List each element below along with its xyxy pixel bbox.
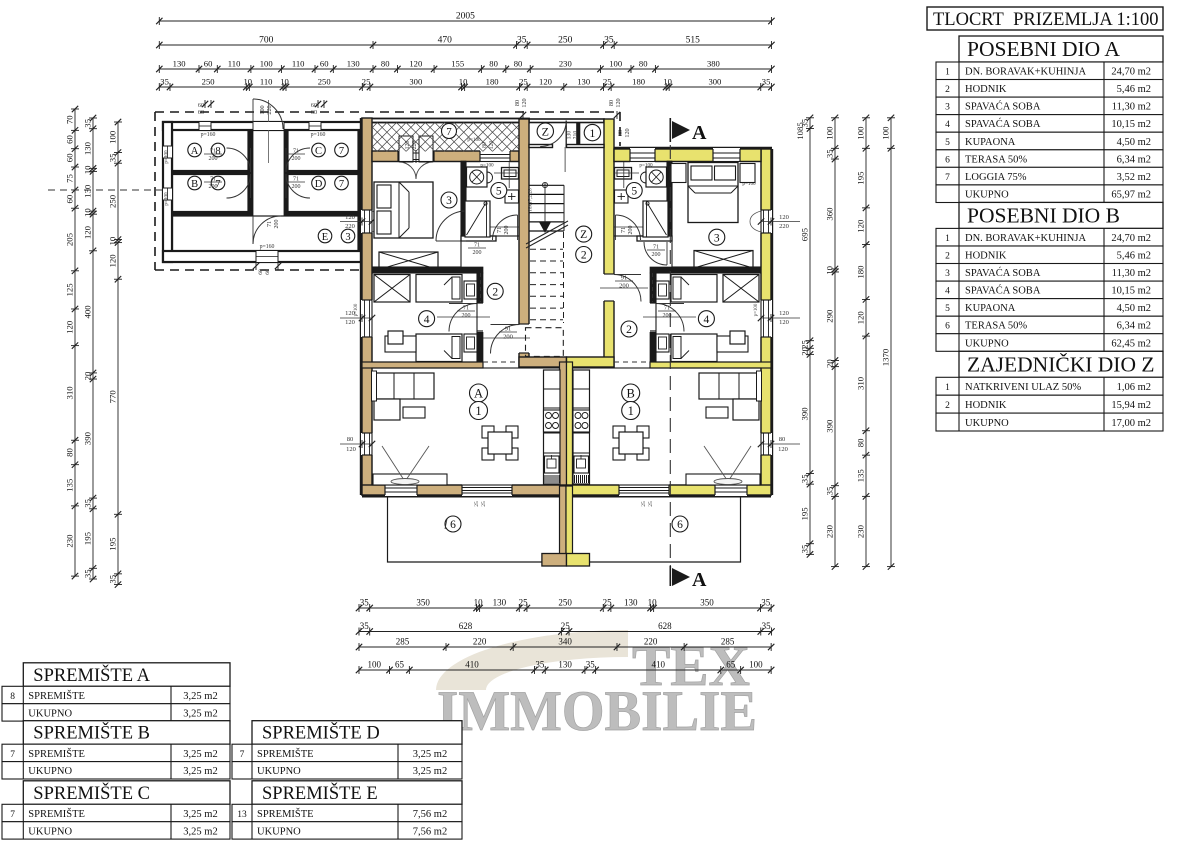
svg-text:4,50 m2: 4,50 m2: [1117, 303, 1151, 314]
svg-text:1085: 1085: [795, 122, 805, 140]
svg-text:180: 180: [486, 77, 499, 87]
svg-text:UKUPNO: UKUPNO: [28, 826, 72, 837]
svg-text:410: 410: [465, 660, 479, 670]
svg-text:UKUPNO: UKUPNO: [965, 338, 1009, 349]
svg-text:NATKRIVENI ULAZ 50%: NATKRIVENI ULAZ 50%: [965, 382, 1081, 393]
svg-text:285: 285: [721, 637, 735, 647]
svg-text:80: 80: [639, 59, 648, 69]
svg-text:100: 100: [259, 105, 266, 114]
svg-text:100: 100: [368, 660, 382, 670]
svg-text:35: 35: [83, 118, 93, 127]
svg-text:71: 71: [621, 227, 627, 233]
svg-text:60: 60: [265, 269, 271, 275]
svg-text:UKUPNO: UKUPNO: [28, 708, 72, 719]
svg-text:120: 120: [521, 98, 528, 107]
svg-text:130: 130: [558, 660, 572, 670]
svg-text:LOGGIA 75%: LOGGIA 75%: [965, 172, 1027, 183]
svg-text:195: 195: [856, 171, 866, 185]
svg-text:80: 80: [381, 59, 390, 69]
svg-text:70: 70: [65, 115, 75, 124]
svg-text:380: 380: [707, 59, 720, 69]
svg-text:18x17,2/28: 18x17,2/28: [528, 188, 534, 212]
svg-text:200: 200: [462, 313, 471, 319]
svg-text:SPREMIŠTE: SPREMIŠTE: [28, 748, 85, 760]
svg-text:3,25 m2: 3,25 m2: [183, 749, 217, 760]
svg-text:1,06 m2: 1,06 m2: [1117, 382, 1151, 393]
svg-text:80: 80: [65, 448, 75, 457]
svg-text:E: E: [322, 232, 328, 243]
svg-text:25: 25: [519, 77, 528, 87]
svg-text:3,25 m2: 3,25 m2: [183, 691, 217, 702]
svg-text:p=100: p=100: [754, 303, 759, 316]
svg-text:135: 135: [65, 478, 75, 492]
svg-text:A: A: [692, 569, 707, 591]
svg-text:60: 60: [65, 135, 75, 144]
svg-text:7: 7: [10, 810, 15, 820]
svg-text:400: 400: [83, 305, 93, 319]
svg-text:35: 35: [586, 660, 596, 670]
svg-text:UKUPNO: UKUPNO: [257, 766, 301, 777]
svg-text:1: 1: [945, 68, 950, 78]
svg-text:4,50 m2: 4,50 m2: [1117, 137, 1151, 148]
svg-text:515: 515: [686, 36, 701, 46]
svg-text:11,30 m2: 11,30 m2: [1112, 102, 1151, 113]
svg-text:700: 700: [259, 36, 274, 46]
svg-text:DN. BORAVAK+KUHINJA: DN. BORAVAK+KUHINJA: [965, 233, 1086, 244]
svg-text:p=100: p=100: [639, 163, 653, 169]
svg-text:p=100: p=100: [480, 163, 494, 169]
svg-text:120: 120: [856, 219, 866, 233]
svg-text:B: B: [191, 179, 198, 190]
svg-text:390: 390: [83, 431, 93, 445]
svg-text:130: 130: [624, 598, 638, 608]
svg-text:TERASA 50%: TERASA 50%: [965, 321, 1027, 332]
svg-text:80: 80: [779, 436, 786, 443]
svg-text:75: 75: [65, 174, 75, 183]
svg-text:120: 120: [778, 446, 788, 453]
svg-text:SPAVAĆA SOBA: SPAVAĆA SOBA: [965, 285, 1041, 297]
svg-text:230: 230: [65, 534, 75, 548]
svg-text:25: 25: [362, 77, 371, 87]
svg-text:TLOCRT PRIZEMLJA 1:100: TLOCRT PRIZEMLJA 1:100: [933, 10, 1159, 30]
svg-text:8: 8: [10, 692, 15, 702]
svg-text:220: 220: [473, 637, 487, 647]
svg-text:1370: 1370: [881, 348, 891, 366]
svg-text:p=100: p=100: [354, 303, 359, 316]
svg-text:6: 6: [450, 519, 456, 531]
svg-text:3: 3: [446, 195, 452, 207]
svg-text:SPREMIŠTE A: SPREMIŠTE A: [33, 664, 150, 686]
svg-text:80: 80: [608, 100, 615, 106]
svg-text:SPAVAĆA SOBA: SPAVAĆA SOBA: [965, 118, 1041, 130]
svg-text:2: 2: [581, 250, 587, 262]
svg-text:SPREMIŠTE: SPREMIŠTE: [257, 748, 314, 760]
svg-text:25: 25: [648, 501, 654, 507]
svg-text:100: 100: [108, 130, 118, 144]
svg-text:110: 110: [292, 59, 305, 69]
svg-text:p=160: p=160: [311, 132, 326, 138]
svg-text:SPREMIŠTE E: SPREMIŠTE E: [262, 782, 378, 804]
svg-text:p=160: p=160: [201, 132, 216, 138]
svg-text:6: 6: [677, 519, 683, 531]
svg-text:D: D: [315, 179, 323, 190]
svg-text:100: 100: [881, 126, 891, 140]
svg-text:p=100: p=100: [164, 150, 170, 164]
svg-text:25: 25: [474, 501, 480, 507]
svg-text:80: 80: [514, 100, 521, 106]
svg-text:3: 3: [945, 269, 950, 279]
svg-text:100: 100: [609, 59, 622, 69]
svg-text:ZAJEDNIČKI DIO Z: ZAJEDNIČKI DIO Z: [967, 352, 1155, 376]
svg-text:7: 7: [240, 750, 245, 760]
svg-text:UKUPNO: UKUPNO: [965, 189, 1009, 200]
svg-text:HODNIK: HODNIK: [965, 251, 1007, 262]
svg-text:120: 120: [409, 59, 422, 69]
svg-text:120: 120: [65, 320, 75, 334]
svg-text:60: 60: [320, 59, 329, 69]
svg-text:HODNIK: HODNIK: [965, 400, 1007, 411]
svg-text:91: 91: [621, 275, 628, 282]
svg-text:120: 120: [615, 98, 622, 107]
svg-text:5: 5: [496, 186, 502, 198]
svg-text:SPREMIŠTE B: SPREMIŠTE B: [33, 722, 150, 744]
svg-text:100: 100: [856, 126, 866, 140]
svg-text:B: B: [627, 387, 635, 401]
svg-text:C: C: [315, 146, 322, 157]
svg-text:130: 130: [173, 59, 186, 69]
svg-text:p=100: p=100: [164, 192, 170, 206]
svg-text:220: 220: [345, 223, 355, 230]
svg-text:7: 7: [945, 173, 950, 183]
svg-text:200: 200: [209, 184, 218, 190]
svg-text:UKUPNO: UKUPNO: [257, 826, 301, 837]
svg-text:180: 180: [632, 77, 645, 87]
svg-text:410: 410: [651, 660, 665, 670]
svg-text:300: 300: [708, 77, 721, 87]
svg-text:120: 120: [345, 319, 355, 326]
svg-text:120: 120: [856, 311, 866, 325]
svg-text:1: 1: [628, 404, 634, 418]
svg-text:17,00 m2: 17,00 m2: [1111, 418, 1151, 429]
svg-text:6,34 m2: 6,34 m2: [1117, 154, 1151, 165]
svg-text:62,45 m2: 62,45 m2: [1111, 338, 1151, 349]
svg-text:1: 1: [475, 404, 481, 418]
svg-text:KUPAONA: KUPAONA: [965, 137, 1016, 148]
svg-text:35: 35: [800, 474, 810, 483]
svg-text:2: 2: [945, 252, 950, 262]
svg-text:120: 120: [108, 254, 118, 268]
svg-text:130: 130: [577, 77, 590, 87]
svg-text:100: 100: [260, 59, 273, 69]
svg-text:Z: Z: [542, 125, 549, 139]
svg-text:628: 628: [459, 621, 473, 631]
svg-text:35: 35: [83, 498, 93, 507]
svg-text:130: 130: [83, 141, 93, 155]
svg-text:1: 1: [589, 126, 595, 140]
svg-text:35: 35: [535, 660, 545, 670]
svg-text:SPAVAĆA SOBA: SPAVAĆA SOBA: [965, 267, 1041, 279]
svg-text:2: 2: [945, 401, 950, 411]
svg-text:250: 250: [558, 36, 573, 46]
svg-text:250: 250: [108, 194, 118, 208]
svg-text:200: 200: [292, 184, 301, 190]
svg-text:Z: Z: [580, 229, 587, 241]
svg-text:110: 110: [228, 59, 241, 69]
svg-text:SPREMIŠTE D: SPREMIŠTE D: [262, 722, 380, 744]
svg-text:35: 35: [762, 77, 771, 87]
svg-text:1: 1: [945, 383, 950, 393]
svg-text:390: 390: [800, 407, 810, 421]
svg-text:80: 80: [514, 59, 523, 69]
svg-text:80: 80: [856, 438, 866, 447]
svg-text:340: 340: [558, 637, 572, 647]
svg-text:25: 25: [641, 501, 647, 507]
svg-text:205: 205: [65, 232, 75, 246]
svg-text:4: 4: [945, 120, 950, 130]
svg-text:220: 220: [266, 105, 273, 114]
svg-text:71: 71: [267, 221, 273, 227]
svg-text:POSEBNI DIO B: POSEBNI DIO B: [967, 203, 1120, 227]
svg-text:6,34 m2: 6,34 m2: [1117, 321, 1151, 332]
svg-text:180: 180: [856, 265, 866, 279]
svg-text:4: 4: [704, 314, 710, 326]
svg-text:350: 350: [416, 598, 430, 608]
svg-text:195: 195: [83, 531, 93, 545]
svg-text:310: 310: [856, 376, 866, 390]
svg-text:310: 310: [65, 386, 75, 400]
svg-text:UKUPNO: UKUPNO: [28, 766, 72, 777]
svg-text:200: 200: [652, 252, 661, 258]
svg-text:35: 35: [83, 569, 93, 578]
svg-text:3,25 m2: 3,25 m2: [413, 766, 447, 777]
svg-text:80: 80: [347, 436, 354, 443]
svg-text:628: 628: [658, 621, 672, 631]
svg-text:200: 200: [292, 156, 301, 162]
svg-text:120: 120: [346, 446, 356, 453]
svg-text:10,15 m2: 10,15 m2: [1111, 119, 1151, 130]
svg-text:3,25 m2: 3,25 m2: [183, 826, 217, 837]
svg-text:POSEBNI DIO A: POSEBNI DIO A: [967, 37, 1120, 61]
svg-text:DN. BORAVAK+KUHINJA: DN. BORAVAK+KUHINJA: [965, 67, 1086, 78]
svg-text:120: 120: [624, 128, 631, 137]
svg-text:130: 130: [83, 184, 93, 198]
svg-text:120: 120: [779, 214, 789, 221]
svg-text:130: 130: [493, 598, 507, 608]
svg-text:5,46 m2: 5,46 m2: [1117, 251, 1151, 262]
svg-text:35: 35: [360, 598, 370, 608]
svg-text:35: 35: [825, 486, 835, 495]
svg-text:65: 65: [395, 660, 405, 670]
svg-text:5: 5: [631, 186, 637, 198]
svg-text:155: 155: [451, 59, 464, 69]
svg-text:200: 200: [274, 220, 280, 229]
svg-text:SPREMIŠTE: SPREMIŠTE: [257, 808, 314, 820]
svg-text:5: 5: [945, 138, 950, 148]
svg-text:195: 195: [108, 537, 118, 551]
svg-text:100: 100: [825, 126, 835, 140]
svg-text:695: 695: [800, 227, 810, 241]
svg-text:91: 91: [505, 326, 512, 333]
svg-text:470: 470: [438, 36, 453, 46]
svg-text:285: 285: [396, 637, 410, 647]
svg-text:24,70 m2: 24,70 m2: [1111, 233, 1151, 244]
svg-text:300: 300: [409, 77, 422, 87]
svg-text:60: 60: [258, 269, 264, 275]
svg-text:SPAVAĆA SOBA: SPAVAĆA SOBA: [965, 101, 1041, 113]
svg-text:120: 120: [83, 225, 93, 239]
svg-text:35: 35: [761, 598, 771, 608]
svg-text:200: 200: [504, 226, 510, 235]
svg-text:100: 100: [749, 660, 763, 670]
svg-text:24,70 m2: 24,70 m2: [1111, 67, 1151, 78]
svg-text:3,25 m2: 3,25 m2: [413, 749, 447, 760]
svg-text:6: 6: [945, 155, 950, 165]
svg-text:2: 2: [626, 324, 632, 336]
svg-text:UKUPNO: UKUPNO: [965, 418, 1009, 429]
svg-text:220: 220: [779, 223, 789, 230]
svg-text:11,30 m2: 11,30 m2: [1112, 268, 1151, 279]
svg-text:35: 35: [108, 153, 118, 162]
svg-text:A: A: [474, 387, 483, 401]
svg-text:200: 200: [503, 334, 513, 341]
svg-text:KUPAONA: KUPAONA: [965, 303, 1016, 314]
svg-text:35: 35: [825, 149, 835, 158]
svg-text:71: 71: [497, 227, 503, 233]
svg-text:7: 7: [10, 750, 15, 760]
svg-text:290: 290: [825, 309, 835, 323]
svg-text:35: 35: [160, 77, 169, 87]
svg-text:60: 60: [65, 153, 75, 162]
svg-text:2005: 2005: [456, 12, 475, 22]
svg-text:250: 250: [202, 77, 215, 87]
svg-text:5: 5: [945, 304, 950, 314]
svg-text:130: 130: [347, 59, 360, 69]
svg-text:65: 65: [726, 660, 736, 670]
svg-text:65,97 m2: 65,97 m2: [1111, 189, 1151, 200]
svg-text:60: 60: [65, 194, 75, 203]
svg-text:7,56 m2: 7,56 m2: [413, 809, 447, 820]
svg-text:35: 35: [360, 621, 370, 631]
svg-text:3: 3: [945, 103, 950, 113]
svg-text:135: 135: [856, 469, 866, 483]
svg-text:200: 200: [209, 156, 218, 162]
svg-text:80: 80: [489, 59, 498, 69]
svg-text:250: 250: [318, 77, 331, 87]
svg-text:120: 120: [539, 77, 552, 87]
svg-text:35: 35: [108, 574, 118, 583]
svg-text:7,56 m2: 7,56 m2: [413, 826, 447, 837]
svg-text:35: 35: [762, 621, 772, 631]
svg-text:A: A: [191, 146, 199, 157]
svg-text:6: 6: [945, 322, 950, 332]
svg-text:200: 200: [628, 226, 634, 235]
svg-text:3: 3: [714, 232, 720, 244]
svg-text:7: 7: [339, 146, 344, 157]
svg-text:350: 350: [700, 598, 714, 608]
svg-text:3,25 m2: 3,25 m2: [183, 708, 217, 719]
svg-text:3,25 m2: 3,25 m2: [183, 766, 217, 777]
svg-text:A: A: [692, 122, 707, 144]
svg-text:220: 220: [644, 637, 658, 647]
svg-text:35: 35: [800, 544, 810, 553]
svg-text:250: 250: [558, 598, 572, 608]
svg-text:4: 4: [424, 314, 430, 326]
svg-text:130: 130: [567, 131, 573, 140]
svg-text:SPREMIŠTE C: SPREMIŠTE C: [33, 782, 150, 804]
svg-text:10,15 m2: 10,15 m2: [1111, 286, 1151, 297]
svg-text:210: 210: [573, 131, 579, 140]
svg-text:7: 7: [339, 179, 344, 190]
svg-text:SPREMIŠTE: SPREMIŠTE: [28, 690, 85, 702]
svg-text:TERASA 50%: TERASA 50%: [965, 154, 1027, 165]
svg-text:SPREMIŠTE: SPREMIŠTE: [28, 808, 85, 820]
svg-text:1: 1: [945, 234, 950, 244]
svg-text:7: 7: [446, 126, 452, 138]
svg-text:230: 230: [825, 524, 835, 538]
svg-text:200: 200: [619, 283, 629, 290]
svg-text:230: 230: [559, 59, 572, 69]
svg-text:125: 125: [65, 283, 75, 297]
svg-text:25: 25: [603, 77, 612, 87]
svg-text:120: 120: [345, 214, 355, 221]
svg-text:2: 2: [945, 85, 950, 95]
svg-text:120: 120: [779, 319, 789, 326]
svg-text:3,52 m2: 3,52 m2: [1117, 172, 1151, 183]
svg-text:230: 230: [856, 524, 866, 538]
svg-text:35: 35: [517, 36, 527, 46]
svg-text:195: 195: [800, 507, 810, 521]
svg-text:5,46 m2: 5,46 m2: [1117, 84, 1151, 95]
svg-text:4: 4: [945, 287, 950, 297]
svg-text:15,94 m2: 15,94 m2: [1111, 400, 1151, 411]
svg-text:3: 3: [345, 232, 350, 243]
svg-text:3,25 m2: 3,25 m2: [183, 809, 217, 820]
svg-text:770: 770: [108, 390, 118, 404]
svg-text:60: 60: [204, 59, 213, 69]
svg-text:p=160: p=160: [260, 244, 275, 250]
svg-text:2: 2: [492, 286, 498, 298]
svg-text:120: 120: [779, 310, 789, 317]
svg-text:IMMOBILIE: IMMOBILIE: [437, 680, 757, 743]
svg-text:HODNIK: HODNIK: [965, 84, 1007, 95]
svg-text:13: 13: [237, 810, 247, 820]
svg-text:35: 35: [604, 36, 614, 46]
svg-text:390: 390: [825, 419, 835, 433]
svg-text:200: 200: [473, 250, 482, 256]
svg-text:25: 25: [481, 501, 487, 507]
svg-text:360: 360: [825, 207, 835, 221]
svg-text:110: 110: [260, 77, 273, 87]
